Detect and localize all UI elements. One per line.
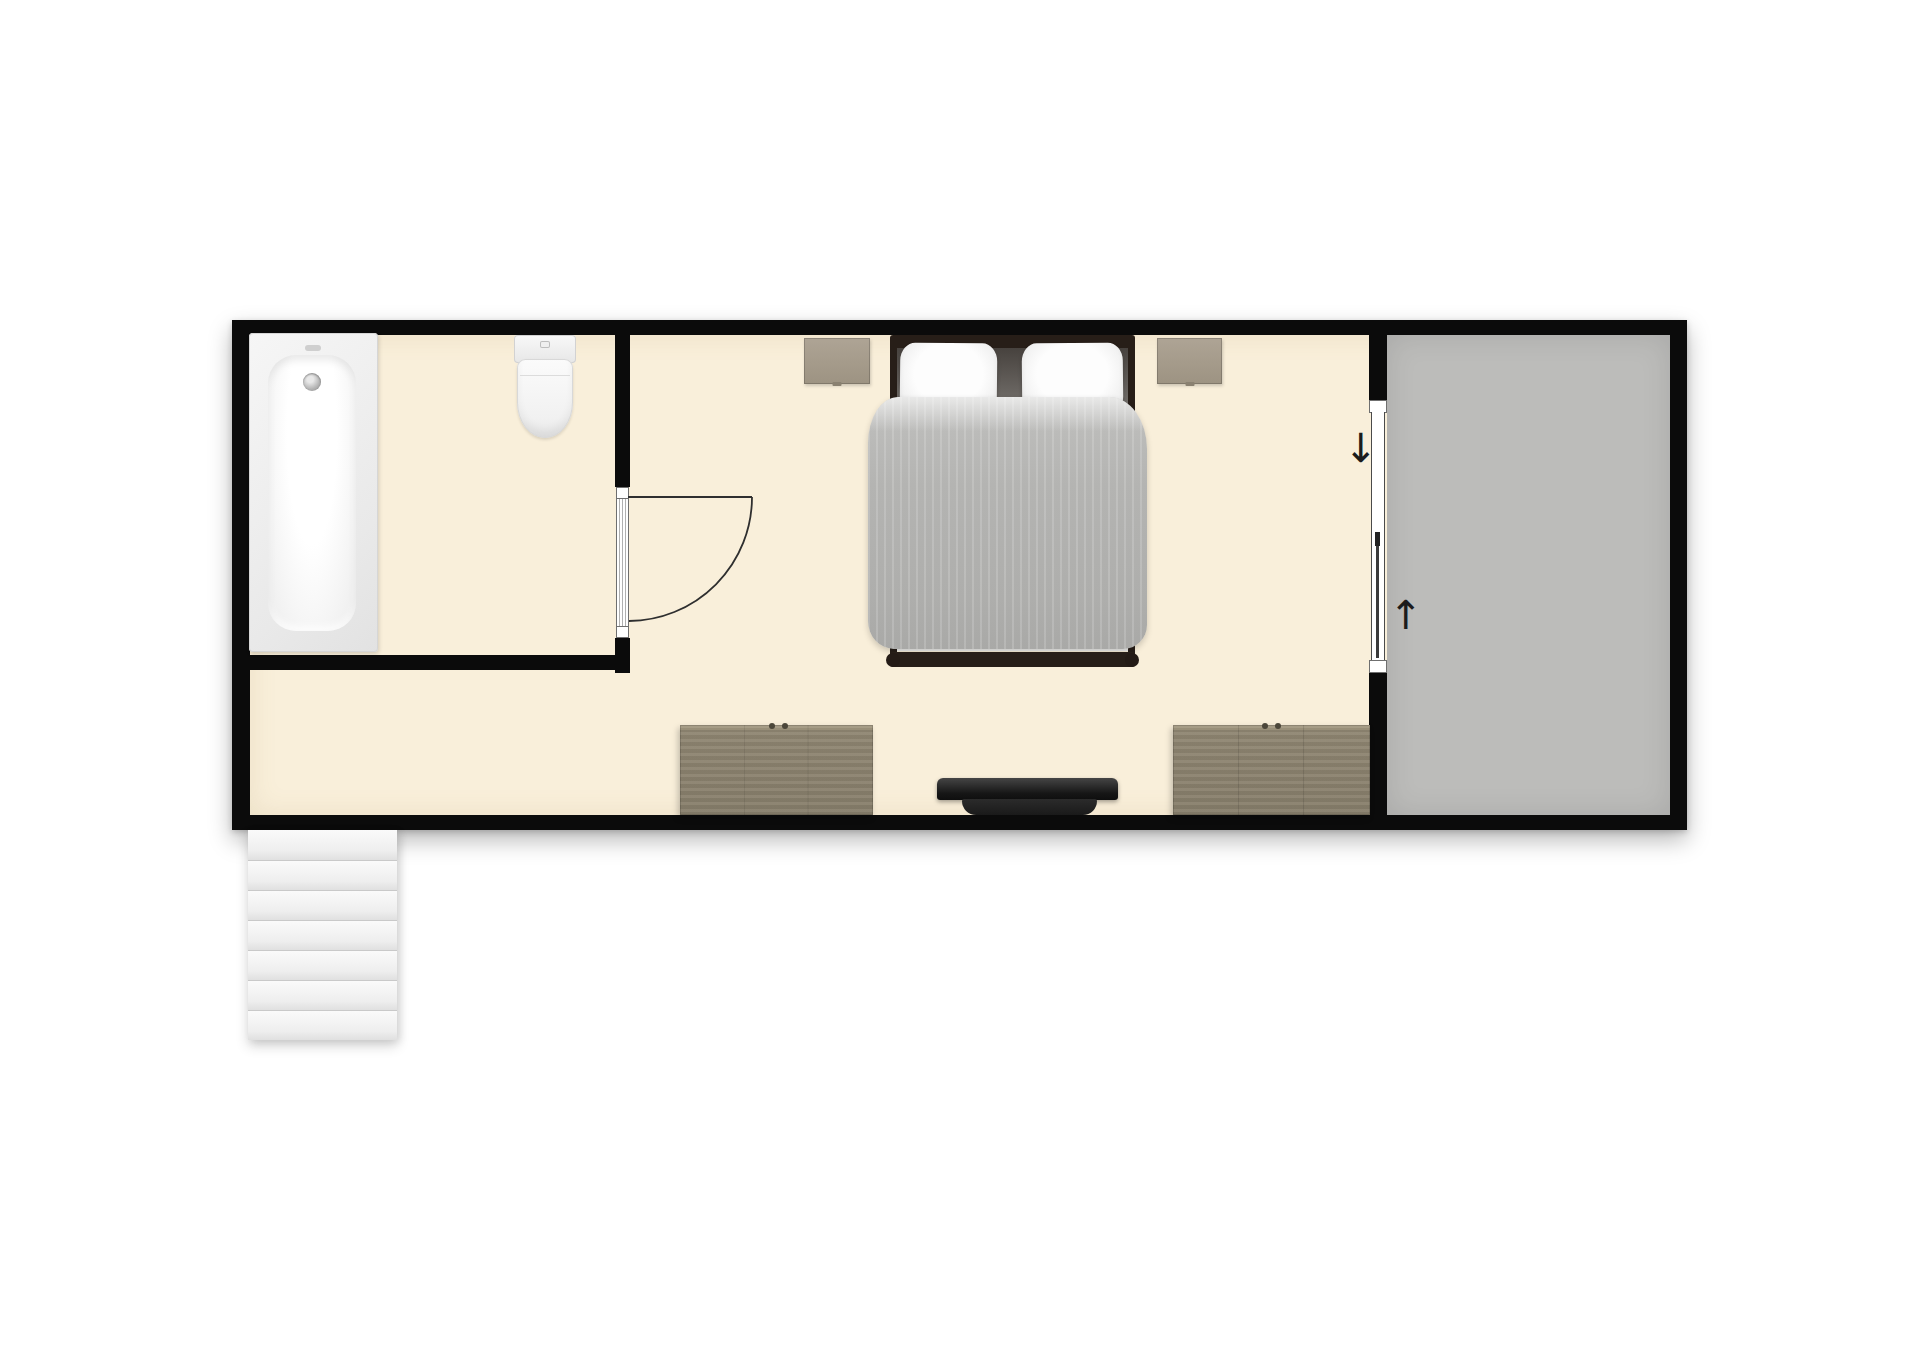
bed-footboard — [890, 652, 1135, 667]
bed-duvet — [868, 397, 1147, 649]
dresser-knob — [782, 723, 788, 729]
stair-tread — [248, 890, 397, 920]
terrace-floor — [1387, 335, 1670, 815]
stair-tread — [248, 950, 397, 980]
floor-plan-canvas: ↓ ↑ — [0, 0, 1920, 1358]
floor-plan: ↓ ↑ — [232, 320, 1687, 830]
dresser-knob — [769, 723, 775, 729]
bed-footboard-knob-right — [1125, 653, 1139, 667]
wall-bathroom-south — [233, 655, 629, 670]
bathtub-basin — [268, 355, 356, 631]
nightstand-knob — [1185, 382, 1194, 386]
sliding-door-jamb-bottom — [1369, 660, 1387, 673]
wall-top — [232, 320, 1687, 335]
nightstand-left — [804, 338, 870, 384]
toilet-bowl — [517, 359, 573, 438]
wall-right — [1670, 320, 1687, 830]
wall-left — [232, 320, 250, 830]
nightstand-right — [1157, 338, 1222, 384]
bed-footboard-knob-left — [886, 653, 900, 667]
stair-tread — [248, 1010, 397, 1040]
slide-up-arrow-icon: ↑ — [1389, 595, 1423, 635]
bathtub-faucet-icon — [305, 345, 321, 351]
bathtub — [249, 333, 378, 652]
slide-down-arrow-icon: ↓ — [1344, 428, 1378, 468]
dresser-knob — [1275, 723, 1281, 729]
sliding-door-handle — [1375, 532, 1380, 546]
stair-tread — [248, 920, 397, 950]
wall-bottom — [232, 815, 1687, 830]
stair-tread — [248, 860, 397, 890]
stair-tread — [248, 830, 397, 860]
double-bed — [890, 335, 1135, 667]
bathtub-drain-icon — [303, 373, 321, 391]
wall-bathroom-east-upper — [615, 335, 630, 487]
sliding-door-leaf — [1376, 536, 1379, 658]
dresser-knob — [1262, 723, 1268, 729]
wall-terrace-lower — [1369, 673, 1387, 815]
staircase — [248, 830, 397, 1040]
toilet-seat-line — [520, 375, 570, 376]
dresser-right — [1173, 725, 1370, 815]
dresser-left — [680, 725, 873, 815]
stair-tread — [248, 980, 397, 1010]
bathroom-door-frame — [616, 498, 629, 627]
toilet — [514, 335, 576, 438]
bathroom-door-jamb-bottom — [616, 626, 629, 638]
tv-stand — [962, 799, 1097, 815]
tv-screen — [937, 778, 1118, 800]
toilet-flush-button — [540, 341, 550, 348]
wall-terrace-upper — [1369, 335, 1387, 400]
nightstand-knob — [833, 382, 842, 386]
